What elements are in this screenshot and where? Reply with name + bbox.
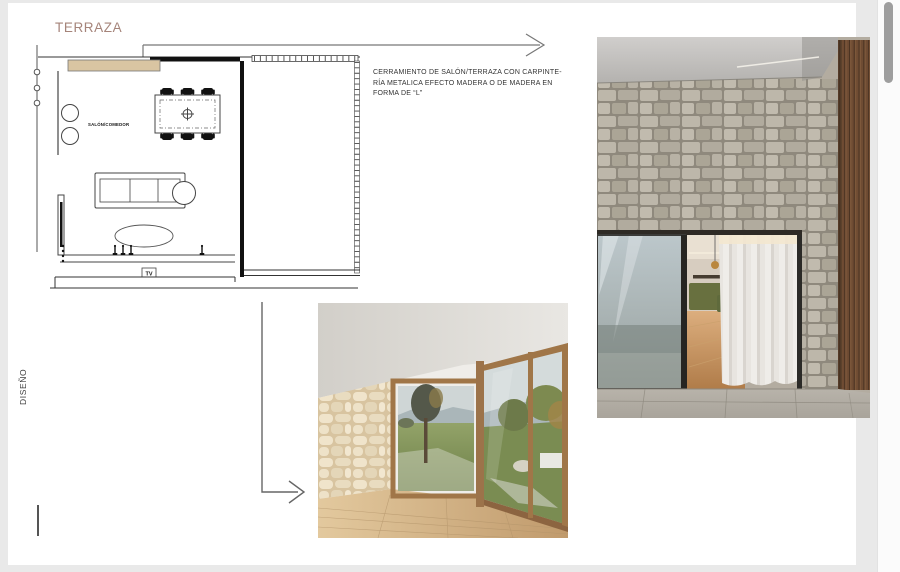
photo1-wood-slats [838, 40, 870, 390]
annotation-text: CERRAMIENTO DE SALÓN/TERRAZA CON CARPINT… [373, 68, 588, 100]
plan-side-chairs [62, 105, 79, 145]
photo1-paver-floor [597, 389, 870, 418]
photo1-concrete-slab [597, 37, 838, 83]
plan-room-label: SALÓN/COMEDOR [88, 122, 130, 127]
elbow-right-arrow-icon [248, 296, 318, 514]
margin-tick [37, 505, 39, 536]
photo-terrace-exterior [597, 37, 870, 418]
plan-dimension-line [34, 45, 40, 252]
document-page: TERRAZA DISEÑO [8, 3, 856, 565]
photo2-right-window [483, 343, 568, 532]
plan-counter [68, 60, 160, 71]
photo-interior-corner-window [318, 303, 568, 538]
annotation-line-1: CERRAMIENTO DE SALÓN/TERRAZA CON CARPINT… [373, 68, 588, 79]
plan-rug [115, 225, 173, 247]
annotation-line-2: RÍA METALICA EFECTO MADERA O DE MADERA E… [373, 79, 588, 90]
plan-walls [38, 56, 360, 278]
photo2-corner-post [476, 361, 484, 507]
photo1-sliding-door [597, 230, 802, 389]
photo1-stone-column [802, 234, 838, 390]
photo2-center-window [393, 381, 479, 496]
plan-tv-label: TV [145, 271, 152, 277]
photo1-pendant-lamp [711, 261, 719, 269]
photo1-stone-wall [597, 79, 838, 235]
plan-dining-table [155, 88, 220, 140]
right-arrow-icon [143, 34, 544, 57]
scrollbar[interactable] [877, 0, 900, 572]
photo1-curtain [719, 235, 797, 386]
document-viewport: TERRAZA DISEÑO [0, 0, 900, 572]
plan-bottom-walls [50, 270, 360, 288]
plan-armchair [173, 182, 196, 205]
plan-sofa [95, 173, 185, 208]
scrollbar-thumb[interactable] [884, 2, 893, 83]
annotation-line-3: FORMA DE “L” [373, 89, 588, 100]
section-vertical-label: DISEÑO [18, 355, 28, 405]
photo2-stone-wall [318, 381, 391, 499]
plan-tv-unit: TV [60, 245, 235, 277]
